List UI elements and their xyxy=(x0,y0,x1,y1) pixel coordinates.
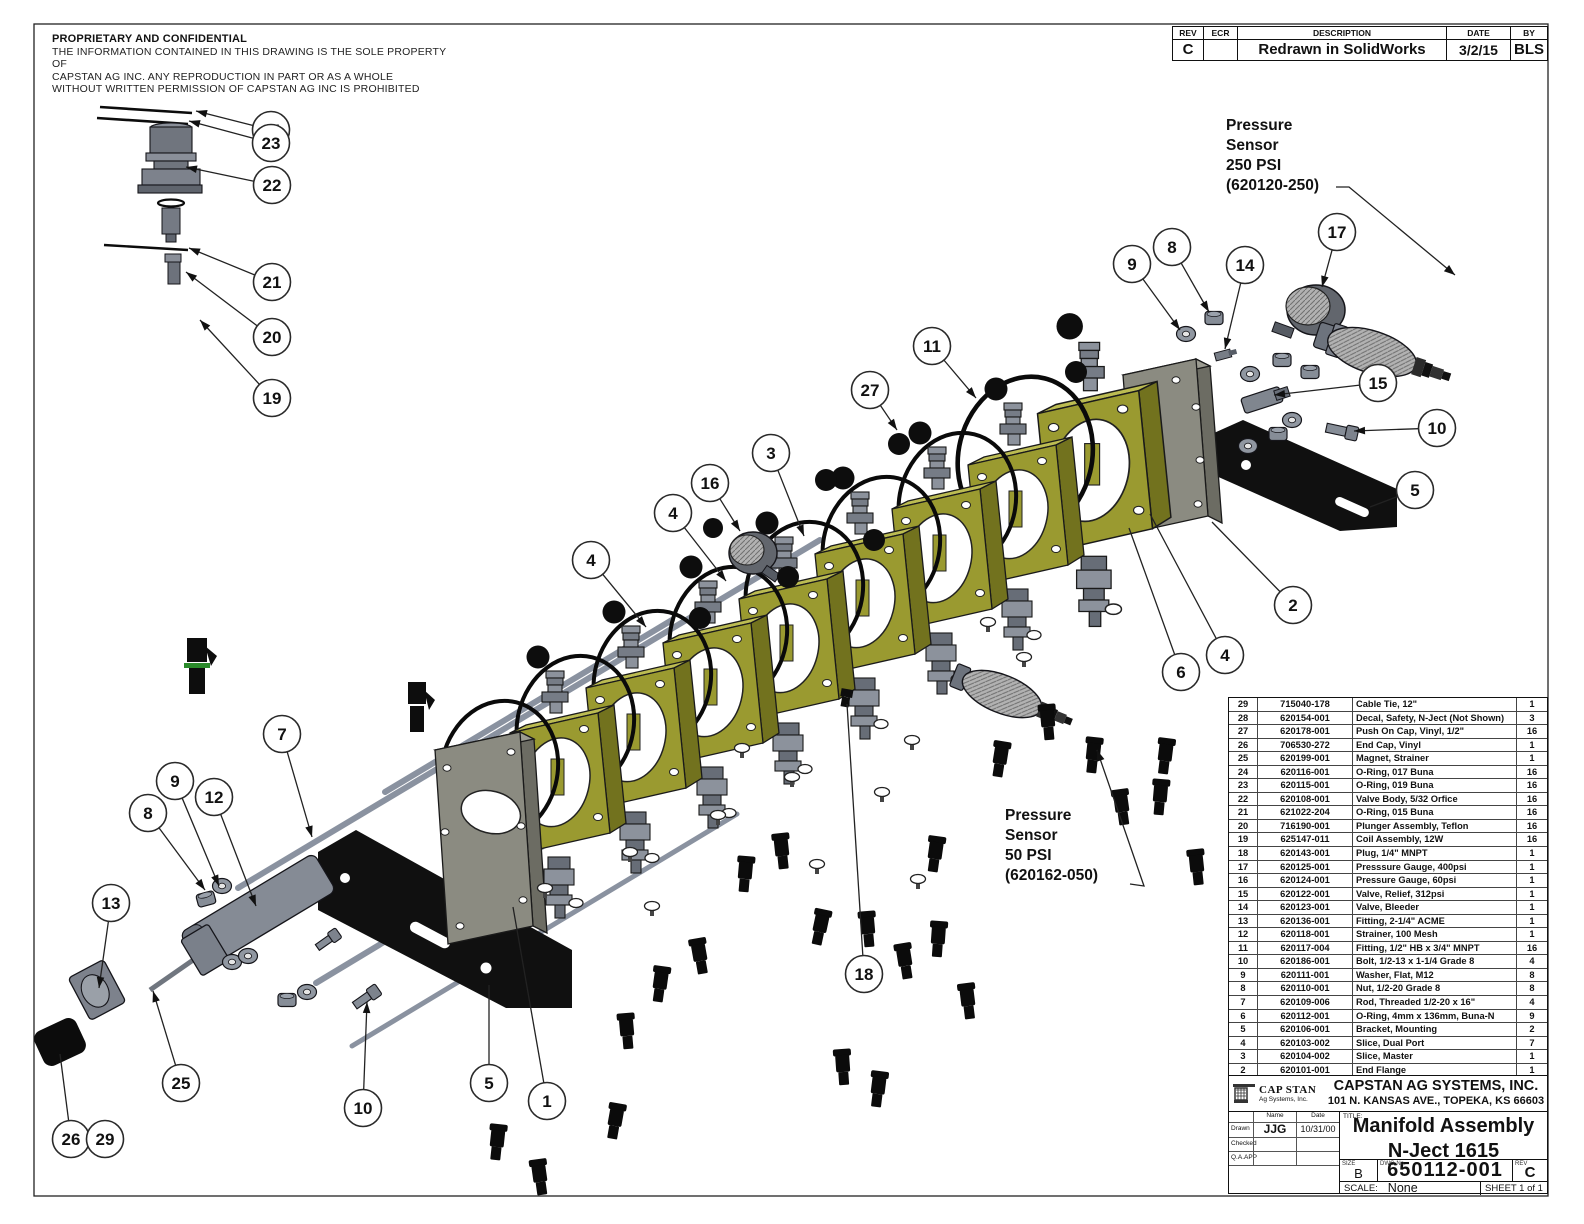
title-label: TITLE: xyxy=(1343,1113,1363,1120)
balloon-number: 7 xyxy=(277,725,286,744)
o-ring-small xyxy=(158,200,184,207)
bom-cell: 4 xyxy=(1229,1037,1258,1050)
bom-cell: Decal, Safety, N-Ject (Not Shown) xyxy=(1353,712,1517,725)
bom-cell: Valve, Relief, 312psi xyxy=(1353,888,1517,901)
bom-cell: 16 xyxy=(1517,833,1547,846)
bom-row: 10620186-001Bolt, 1/2-13 x 1-1/4 Grade 8… xyxy=(1229,954,1547,968)
rev-header: DESCRIPTION xyxy=(1238,27,1447,40)
bom-cell: 620109-006 xyxy=(1258,996,1353,1009)
bom-cell: 620123-001 xyxy=(1258,901,1353,914)
bom-row: 25620199-001Magnet, Strainer1 xyxy=(1229,751,1547,765)
balloon-number: 4 xyxy=(586,551,596,570)
bom-row: 26706530-272End Cap, Vinyl1 xyxy=(1229,738,1547,752)
balloon-18: 18 xyxy=(846,704,883,993)
bom-cell: 620199-001 xyxy=(1258,752,1353,765)
bom-cell: 1 xyxy=(1517,928,1547,941)
balloon-number: 8 xyxy=(143,804,152,823)
balloon-number: 22 xyxy=(263,176,282,195)
logo-icon xyxy=(1232,1082,1256,1104)
balloon-number: 5 xyxy=(484,1074,493,1093)
signature-cell: 10/31/00 xyxy=(1296,1123,1339,1137)
bom-cell: Strainer, 100 Mesh xyxy=(1353,928,1517,941)
bom-cell: 19 xyxy=(1229,833,1258,846)
inlet-flange xyxy=(435,732,547,944)
bom-cell: Cable Tie, 12" xyxy=(1353,698,1517,711)
bom-cell: 29 xyxy=(1229,698,1258,711)
company-address: 101 N. KANSAS AVE., TOPEKA, KS 66603 xyxy=(1327,1095,1545,1108)
bom-cell: 16 xyxy=(1517,779,1547,792)
balloon-26: 26 xyxy=(53,1054,90,1158)
balloon-4: 4 xyxy=(1150,514,1244,674)
rev-value: C xyxy=(1173,40,1204,60)
bom-cell: 620111-001 xyxy=(1258,969,1353,982)
balloon-number: 10 xyxy=(354,1099,373,1118)
rev-cell: REV C xyxy=(1513,1160,1547,1181)
balloon-number: 26 xyxy=(62,1130,81,1149)
bom-cell: 620143-001 xyxy=(1258,847,1353,860)
company-band: CAP STAN Ag Systems, Inc. CAPSTAN AG SYS… xyxy=(1229,1076,1547,1112)
bom-cell: Washer, Flat, M12 xyxy=(1353,969,1517,982)
bom-row: 7620109-006Rod, Threaded 1/2-20 x 16"4 xyxy=(1229,995,1547,1009)
label-line: Pressure xyxy=(1226,116,1319,136)
bom-row: 18620143-001Plug, 1/4" MNPT1 xyxy=(1229,846,1547,860)
bom-row: 8620110-001Nut, 1/2-20 Grade 88 xyxy=(1229,981,1547,995)
bom-cell: Bracket, Mounting xyxy=(1353,1023,1517,1036)
signature-cell: JJG xyxy=(1253,1123,1296,1137)
signature-row: Q.A.APP xyxy=(1229,1152,1339,1166)
title-line-2: N-Ject 1615 xyxy=(1340,1137,1547,1162)
bom-cell: 1 xyxy=(1517,752,1547,765)
bom-cell: 620103-002 xyxy=(1258,1037,1353,1050)
balloon-15: 15 xyxy=(1274,365,1397,402)
balloon-number: 3 xyxy=(766,444,775,463)
date-col-header: Date xyxy=(1296,1112,1339,1122)
relief-valve xyxy=(1241,384,1292,414)
bom-cell: 620108-001 xyxy=(1258,793,1353,806)
signature-cell xyxy=(1296,1152,1339,1165)
vinyl-end-cap xyxy=(31,1015,89,1069)
bom-cell: 620106-001 xyxy=(1258,1023,1353,1036)
rev-header: REV xyxy=(1173,27,1204,40)
label-line: 250 PSI xyxy=(1226,156,1319,176)
revision-table: REV ECR DESCRIPTION DATE BY C Redrawn in… xyxy=(1172,26,1548,61)
balloon-number: 21 xyxy=(263,273,282,292)
bom-cell: 7 xyxy=(1517,1037,1547,1050)
bom-cell: 1 xyxy=(1517,888,1547,901)
bom-cell: 20 xyxy=(1229,820,1258,833)
pressure-sensor-250-label: Pressure Sensor 250 PSI (620120-250) xyxy=(1226,116,1319,196)
sheet-cell: SHEET 1 of 1 xyxy=(1480,1182,1547,1195)
bom-cell: 715040-178 xyxy=(1258,698,1353,711)
balloon-27: 27 xyxy=(852,372,898,431)
balloon-number: 29 xyxy=(96,1130,115,1149)
bom-cell: O-Ring, 4mm x 136mm, Buna-N xyxy=(1353,1010,1517,1023)
bom-row: 11620117-004Fitting, 1/2" HB x 3/4" MNPT… xyxy=(1229,941,1547,955)
bom-cell: 7 xyxy=(1229,996,1258,1009)
signature-cell: Q.A.APP xyxy=(1229,1152,1253,1165)
bom-cell: 8 xyxy=(1517,969,1547,982)
bom-cell: 15 xyxy=(1229,888,1258,901)
balloon-number: 10 xyxy=(1428,419,1447,438)
bom-cell: 620117-004 xyxy=(1258,942,1353,955)
bom-cell: 620122-001 xyxy=(1258,888,1353,901)
bom-row: 19625147-011Coil Assembly, 12W16 xyxy=(1229,832,1547,846)
bill-of-materials: 29715040-178Cable Tie, 12"128620154-001D… xyxy=(1228,697,1548,1105)
bom-cell: 8 xyxy=(1517,982,1547,995)
rev-header: DATE xyxy=(1447,27,1511,40)
balloon-21: 21 xyxy=(189,248,291,301)
balloon-number: 14 xyxy=(1236,256,1255,275)
bom-cell: 9 xyxy=(1229,969,1258,982)
valve-detail xyxy=(97,107,202,284)
balloon-10: 10 xyxy=(1354,410,1456,447)
bleeder-fitting xyxy=(1214,348,1237,361)
bom-cell: 2 xyxy=(1517,1023,1547,1036)
pressure-sensor-50-label: Pressure Sensor 50 PSI (620162-050) xyxy=(1005,806,1098,886)
bom-cell: 13 xyxy=(1229,915,1258,928)
rev-header: BY xyxy=(1511,27,1547,40)
label-line: 50 PSI xyxy=(1005,846,1098,866)
bom-cell: 14 xyxy=(1229,901,1258,914)
bom-cell: Nut, 1/2-20 Grade 8 xyxy=(1353,982,1517,995)
bom-row: 12620118-001Strainer, 100 Mesh1 xyxy=(1229,927,1547,941)
bom-cell: 22 xyxy=(1229,793,1258,806)
balloon-number: 1 xyxy=(542,1092,551,1111)
size-cell: SIZE B xyxy=(1340,1160,1378,1181)
bom-cell: O-Ring, 017 Buna xyxy=(1353,766,1517,779)
bom-cell: 620136-001 xyxy=(1258,915,1353,928)
bom-cell: 3 xyxy=(1229,1050,1258,1063)
drawing-title: TITLE: Manifold Assembly N-Ject 1615 xyxy=(1340,1112,1547,1160)
balloon-number: 4 xyxy=(668,504,678,523)
bom-cell: O-Ring, 015 Buna xyxy=(1353,806,1517,819)
acme-fitting xyxy=(68,959,126,1020)
bom-row: 15620122-001Valve, Relief, 312psi1 xyxy=(1229,887,1547,901)
proprietary-note: PROPRIETARY AND CONFIDENTIAL THE INFORMA… xyxy=(52,33,452,96)
company-name: CAPSTAN AG SYSTEMS, INC. xyxy=(1327,1078,1545,1095)
bom-row: 23620115-001O-Ring, 019 Buna16 xyxy=(1229,778,1547,792)
rev-date: 3/2/15 xyxy=(1447,40,1511,60)
bom-cell: 21 xyxy=(1229,806,1258,819)
bom-cell: Coil Assembly, 12W xyxy=(1353,833,1517,846)
bom-cell: Rod, Threaded 1/2-20 x 16" xyxy=(1353,996,1517,1009)
title-block: CAP STAN Ag Systems, Inc. CAPSTAN AG SYS… xyxy=(1228,1075,1548,1194)
grade8-bolt xyxy=(1325,421,1359,441)
ecr-value xyxy=(1204,40,1238,60)
bom-cell: Valve Body, 5/32 Orfice xyxy=(1353,793,1517,806)
balloon-number: 9 xyxy=(1127,255,1136,274)
bom-cell: 620116-001 xyxy=(1258,766,1353,779)
bom-row: 22620108-001Valve Body, 5/32 Orfice16 xyxy=(1229,792,1547,806)
rev-by: BLS xyxy=(1511,40,1547,60)
bom-row: 17620125-001Presssure Gauge, 400psi1 xyxy=(1229,860,1547,874)
bom-cell: 1 xyxy=(1517,698,1547,711)
label-line: Pressure xyxy=(1005,806,1098,826)
bom-row: 16620124-001Pressure Gauge, 60psi1 xyxy=(1229,873,1547,887)
balloon-number: 2 xyxy=(1288,596,1297,615)
balloon-25: 25 xyxy=(153,991,200,1102)
bom-cell: 1 xyxy=(1517,861,1547,874)
bom-cell: 4 xyxy=(1517,996,1547,1009)
proprietary-title: PROPRIETARY AND CONFIDENTIAL xyxy=(52,33,452,46)
bom-cell: Plunger Assembly, Teflon xyxy=(1353,820,1517,833)
balloon-number: 12 xyxy=(205,788,224,807)
o-ring-017 xyxy=(100,107,192,113)
o-ring-015 xyxy=(104,245,188,250)
bom-cell: Plug, 1/4" MNPT xyxy=(1353,847,1517,860)
bom-cell: 16 xyxy=(1517,942,1547,955)
drawing-sheet: 2423222120199814171510511273164424679128… xyxy=(0,0,1584,1224)
balloon-number: 9 xyxy=(170,772,179,791)
balloon-number: 15 xyxy=(1369,374,1388,393)
balloon-29: 29 xyxy=(87,1121,124,1158)
bom-cell: 16 xyxy=(1517,820,1547,833)
signature-table: Name Date DrawnJJG10/31/00CheckedQ.A.APP xyxy=(1229,1112,1340,1193)
signature-row: Checked xyxy=(1229,1138,1339,1152)
bom-cell: Push On Cap, Vinyl, 1/2" xyxy=(1353,725,1517,738)
balloon-number: 18 xyxy=(855,965,874,984)
bom-cell: 8 xyxy=(1229,982,1258,995)
rev-label: REV xyxy=(1515,1161,1527,1167)
bom-cell: 1 xyxy=(1517,874,1547,887)
bleeder-valve xyxy=(408,682,435,732)
signature-row: DrawnJJG10/31/00 xyxy=(1229,1123,1339,1138)
rev-description: Redrawn in SolidWorks xyxy=(1238,40,1447,60)
scale-value: None xyxy=(1388,1181,1418,1195)
bom-row: 13620136-001Fitting, 2-1/4" ACME1 xyxy=(1229,914,1547,928)
bom-cell: O-Ring, 019 Buna xyxy=(1353,779,1517,792)
bom-cell: 620186-001 xyxy=(1258,955,1353,968)
bom-cell: Magnet, Strainer xyxy=(1353,752,1517,765)
size-label: SIZE xyxy=(1342,1161,1355,1167)
label-line: Sensor xyxy=(1226,136,1319,156)
label-line: (620120-250) xyxy=(1226,176,1319,196)
proprietary-line: CAPSTAN AG INC. ANY REPRODUCTION IN PART… xyxy=(52,71,452,84)
bottom-hardware xyxy=(278,928,382,1011)
bom-row: 5620106-001Bracket, Mounting2 xyxy=(1229,1022,1547,1036)
bom-cell: 18 xyxy=(1229,847,1258,860)
bom-cell: 12 xyxy=(1229,928,1258,941)
bom-cell: 1 xyxy=(1517,847,1547,860)
bom-cell: 17 xyxy=(1229,861,1258,874)
balloon-number: 20 xyxy=(263,328,282,347)
balloon-6: 6 xyxy=(1129,528,1200,691)
bom-cell: 10 xyxy=(1229,955,1258,968)
bom-row: 9620111-001Washer, Flat, M128 xyxy=(1229,968,1547,982)
proprietary-line: WITHOUT WRITTEN PERMISSION OF CAPSTAN AG… xyxy=(52,83,452,96)
balloon-8: 8 xyxy=(130,795,206,891)
balloon-7: 7 xyxy=(264,716,313,838)
balloon-10: 10 xyxy=(345,1002,382,1127)
bom-row: 27620178-001Push On Cap, Vinyl, 1/2"16 xyxy=(1229,724,1547,738)
balloon-number: 25 xyxy=(172,1074,191,1093)
bom-cell: 620118-001 xyxy=(1258,928,1353,941)
balloon-14: 14 xyxy=(1224,247,1264,350)
proprietary-line: THE INFORMATION CONTAINED IN THIS DRAWIN… xyxy=(52,46,452,71)
bom-cell: Valve, Bleeder xyxy=(1353,901,1517,914)
bom-cell: 16 xyxy=(1517,725,1547,738)
balloon-number: 8 xyxy=(1167,238,1176,257)
plunger-assembly xyxy=(162,208,180,242)
bom-cell: 620115-001 xyxy=(1258,779,1353,792)
balloon-number: 17 xyxy=(1328,223,1347,242)
bom-row: 24620116-001O-Ring, 017 Buna16 xyxy=(1229,765,1547,779)
balloon-number: 16 xyxy=(701,474,720,493)
bom-cell: 716190-001 xyxy=(1258,820,1353,833)
magnet-strainer xyxy=(184,638,217,694)
bom-cell: 16 xyxy=(1517,766,1547,779)
pressure-sensor-50psi xyxy=(947,657,1079,740)
valve-body xyxy=(138,123,202,193)
bom-cell: 620125-001 xyxy=(1258,861,1353,874)
balloon-2: 2 xyxy=(1212,522,1312,624)
bom-cell: 6 xyxy=(1229,1010,1258,1023)
bom-cell: 16 xyxy=(1517,806,1547,819)
bom-cell: 27 xyxy=(1229,725,1258,738)
bom-cell: 23 xyxy=(1229,779,1258,792)
bom-cell: 9 xyxy=(1517,1010,1547,1023)
bom-cell: 620104-002 xyxy=(1258,1050,1353,1063)
balloon-number: 11 xyxy=(923,337,941,356)
bom-cell: 16 xyxy=(1517,793,1547,806)
bom-cell: Pressure Gauge, 60psi xyxy=(1353,874,1517,887)
bom-cell: Slice, Dual Port xyxy=(1353,1037,1517,1050)
bom-row: 4620103-002Slice, Dual Port7 xyxy=(1229,1036,1547,1050)
capstan-logo: CAP STAN Ag Systems, Inc. xyxy=(1229,1082,1327,1104)
mounting-bracket-right xyxy=(1205,420,1397,531)
bom-cell: 5 xyxy=(1229,1023,1258,1036)
balloon-17: 17 xyxy=(1319,214,1356,288)
bom-cell: 620124-001 xyxy=(1258,874,1353,887)
bom-cell: 706530-272 xyxy=(1258,739,1353,752)
balloon-number: 5 xyxy=(1410,481,1419,500)
bom-cell: 620112-001 xyxy=(1258,1010,1353,1023)
bom-cell: 620178-001 xyxy=(1258,725,1353,738)
balloon-number: 19 xyxy=(263,389,282,408)
balloon-23: 23 xyxy=(189,120,290,161)
bom-row: 21621022-204O-Ring, 015 Buna16 xyxy=(1229,805,1547,819)
signature-cell xyxy=(1253,1152,1296,1165)
bom-cell: 625147-011 xyxy=(1258,833,1353,846)
balloon-number: 6 xyxy=(1176,663,1185,682)
bom-cell: 16 xyxy=(1229,874,1258,887)
title-line-1: Manifold Assembly xyxy=(1340,1112,1547,1137)
bom-row: 14620123-001Valve, Bleeder1 xyxy=(1229,900,1547,914)
plunger xyxy=(165,254,181,284)
bom-row: 28620154-001Decal, Safety, N-Ject (Not S… xyxy=(1229,711,1547,725)
signature-cell: Drawn xyxy=(1229,1123,1253,1137)
dwg-no-cell: DWG No. 650112-001 xyxy=(1378,1160,1513,1181)
bom-cell: 1 xyxy=(1517,901,1547,914)
label-line: Sensor xyxy=(1005,826,1098,846)
bom-row: 29715040-178Cable Tie, 12"1 xyxy=(1229,698,1547,711)
balloon-number: 4 xyxy=(1220,646,1230,665)
strainer-assembly xyxy=(31,853,336,1069)
bom-cell: Bolt, 1/2-13 x 1-1/4 Grade 8 xyxy=(1353,955,1517,968)
bom-cell: Fitting, 2-1/4" ACME xyxy=(1353,915,1517,928)
signature-cell xyxy=(1296,1138,1339,1151)
bom-row: 6620112-001O-Ring, 4mm x 136mm, Buna-N9 xyxy=(1229,1009,1547,1023)
bom-cell: 620110-001 xyxy=(1258,982,1353,995)
bom-cell: End Cap, Vinyl xyxy=(1353,739,1517,752)
bom-cell: 1 xyxy=(1517,739,1547,752)
bolt xyxy=(314,928,342,953)
balloon-11: 11 xyxy=(914,328,977,399)
bom-cell: 620154-001 xyxy=(1258,712,1353,725)
logo-subtext: Ag Systems, Inc. xyxy=(1259,1096,1316,1103)
balloon-number: 13 xyxy=(102,894,121,913)
bom-cell: Presssure Gauge, 400psi xyxy=(1353,861,1517,874)
label-line: (620162-050) xyxy=(1005,866,1098,886)
rev-header: ECR xyxy=(1204,27,1238,40)
signature-cell xyxy=(1253,1138,1296,1151)
bom-row: 3620104-002Slice, Master1 xyxy=(1229,1049,1547,1063)
bom-cell: 24 xyxy=(1229,766,1258,779)
logo-text: CAP STAN xyxy=(1259,1084,1316,1096)
name-col-header: Name xyxy=(1253,1112,1296,1122)
bom-cell: 26 xyxy=(1229,739,1258,752)
bom-cell: 1 xyxy=(1517,1050,1547,1063)
bom-cell: Fitting, 1/2" HB x 3/4" MNPT xyxy=(1353,942,1517,955)
bom-cell: 4 xyxy=(1517,955,1547,968)
balloon-number: 27 xyxy=(861,381,880,400)
signature-cell: Checked xyxy=(1229,1138,1253,1151)
bom-cell: 3 xyxy=(1517,712,1547,725)
bom-cell: 1 xyxy=(1517,915,1547,928)
bom-cell: 25 xyxy=(1229,752,1258,765)
bom-cell: 11 xyxy=(1229,942,1258,955)
bom-cell: 28 xyxy=(1229,712,1258,725)
balloon-number: 23 xyxy=(262,134,281,153)
bom-row: 20716190-001Plunger Assembly, Teflon16 xyxy=(1229,819,1547,833)
dwg-label: DWG No. xyxy=(1380,1161,1406,1167)
bom-cell: Slice, Master xyxy=(1353,1050,1517,1063)
scale-label: SCALE: xyxy=(1344,1183,1378,1194)
scale-cell: SCALE: None xyxy=(1340,1182,1480,1195)
balloon-8: 8 xyxy=(1154,229,1210,313)
bom-cell: 621022-204 xyxy=(1258,806,1353,819)
